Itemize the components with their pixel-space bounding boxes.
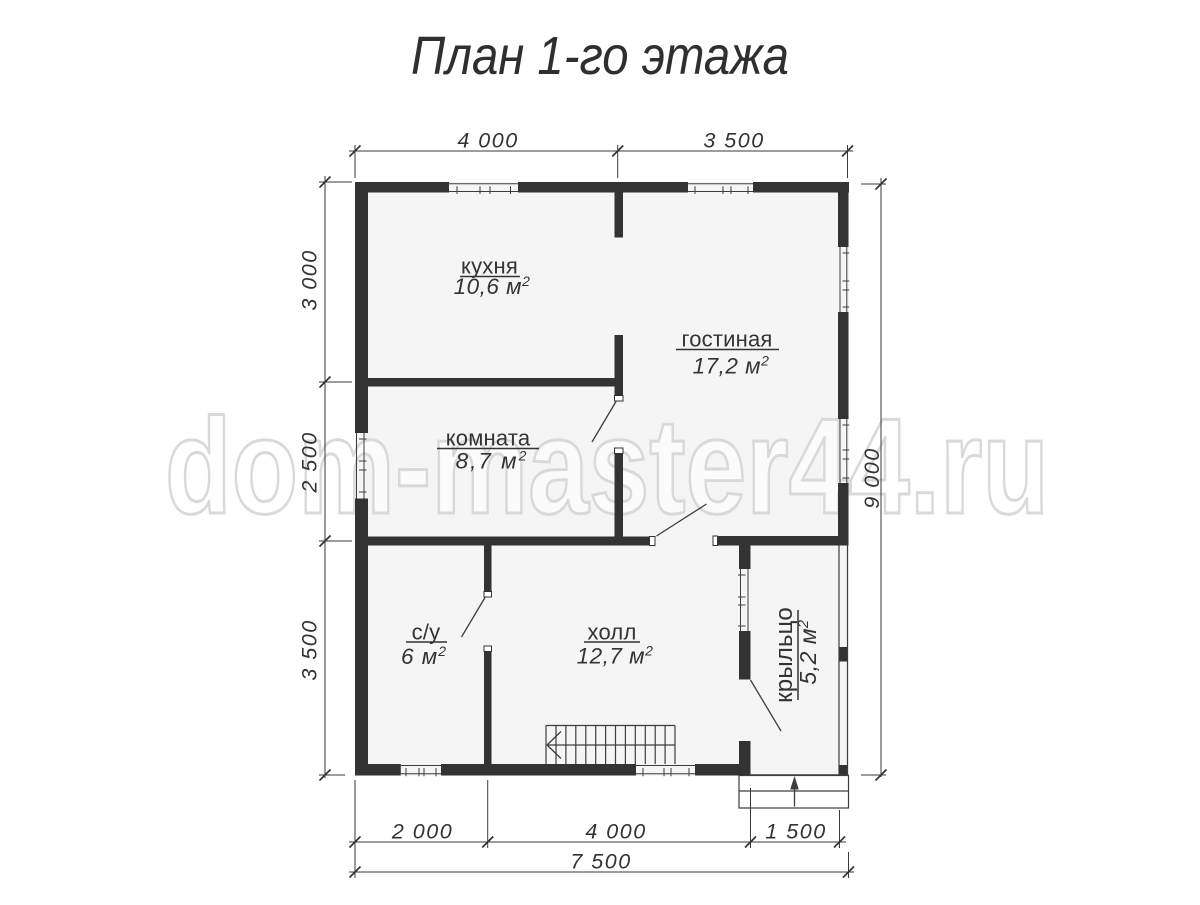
- svg-text:4 000: 4 000: [457, 129, 518, 153]
- svg-text:8,7 м2: 8,7 м2: [456, 448, 529, 474]
- svg-text:2 000: 2 000: [391, 820, 453, 844]
- svg-text:3 000: 3 000: [298, 249, 322, 310]
- svg-text:3 500: 3 500: [703, 129, 764, 153]
- svg-text:крыльцо: крыльцо: [771, 607, 798, 703]
- svg-text:5,2 м2: 5,2 м2: [795, 619, 821, 684]
- svg-text:12,7 м2: 12,7 м2: [577, 643, 654, 669]
- svg-text:2 500: 2 500: [298, 431, 322, 493]
- svg-text:1 500: 1 500: [765, 820, 826, 844]
- svg-text:с/у: с/у: [412, 620, 441, 645]
- svg-text:17,2 м2: 17,2 м2: [693, 353, 770, 379]
- svg-text:4 000: 4 000: [585, 820, 646, 844]
- svg-text:7 500: 7 500: [570, 850, 631, 874]
- svg-text:3 500: 3 500: [298, 619, 322, 680]
- svg-text:10,6 м2: 10,6 м2: [454, 273, 531, 299]
- svg-text:гостиная: гостиная: [681, 327, 772, 352]
- svg-text:План 1-го этажа: План 1-го этажа: [411, 26, 789, 86]
- svg-text:холл: холл: [588, 620, 637, 645]
- svg-text:9 000: 9 000: [860, 447, 884, 508]
